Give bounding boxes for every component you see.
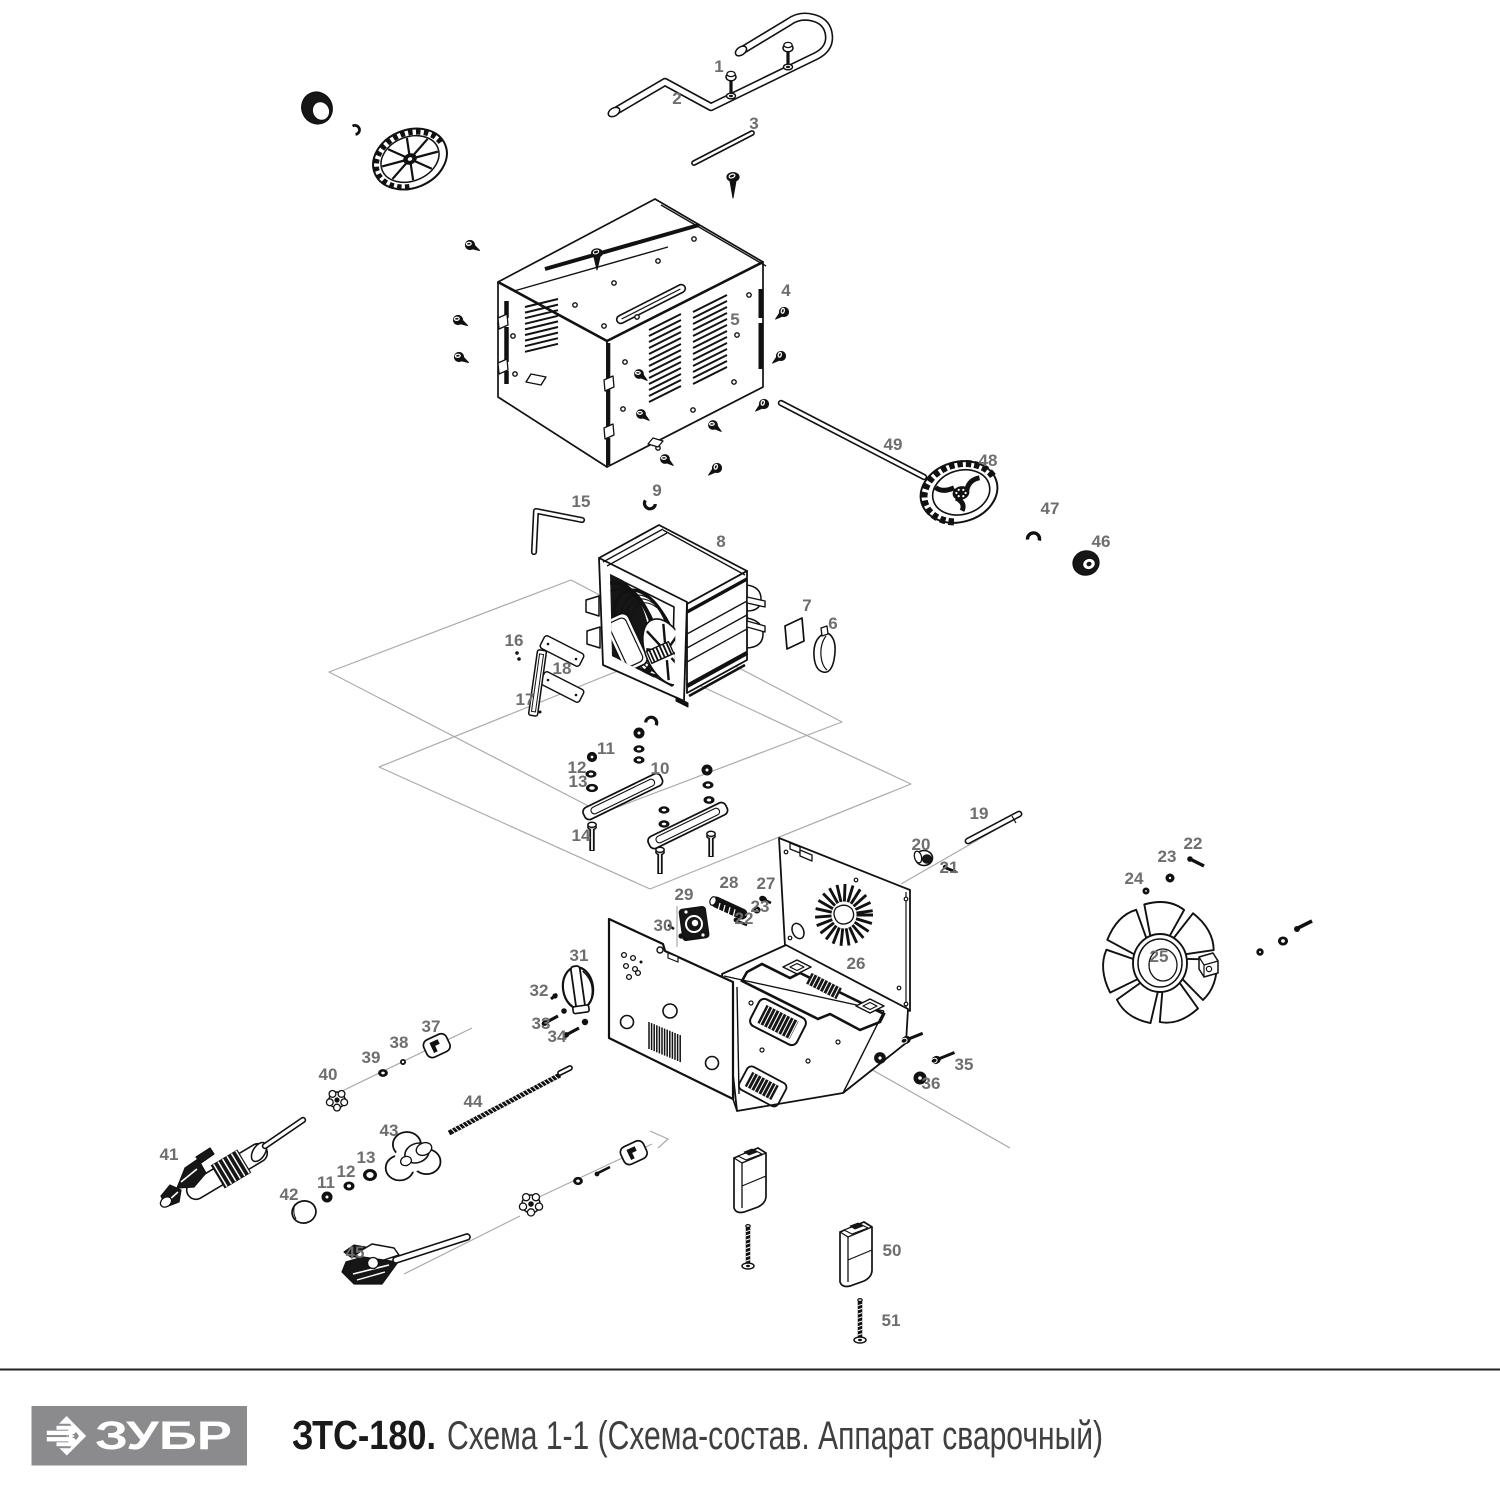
svg-text:47: 47 — [1041, 499, 1060, 518]
svg-text:ЗТС-180.: ЗТС-180. — [292, 1412, 436, 1458]
svg-text:3: 3 — [749, 114, 758, 133]
svg-text:20: 20 — [912, 835, 931, 854]
svg-text:26: 26 — [847, 954, 866, 973]
svg-text:19: 19 — [970, 804, 989, 823]
svg-text:28: 28 — [720, 873, 739, 892]
svg-text:41: 41 — [160, 1145, 179, 1164]
svg-text:21: 21 — [940, 858, 959, 877]
svg-text:25: 25 — [1150, 947, 1169, 966]
svg-text:49: 49 — [884, 435, 903, 454]
svg-text:13: 13 — [357, 1148, 376, 1167]
svg-text:13: 13 — [569, 772, 588, 791]
svg-text:1: 1 — [714, 57, 723, 76]
svg-text:16: 16 — [505, 631, 524, 650]
svg-text:11: 11 — [597, 739, 615, 758]
svg-text:31: 31 — [570, 946, 589, 965]
svg-text:38: 38 — [390, 1033, 409, 1052]
svg-text:29: 29 — [675, 885, 694, 904]
svg-text:4: 4 — [781, 281, 791, 300]
svg-text:30: 30 — [654, 916, 673, 935]
svg-text:48: 48 — [979, 451, 998, 470]
svg-text:5: 5 — [730, 310, 739, 329]
svg-text:18: 18 — [553, 659, 572, 678]
svg-text:42: 42 — [280, 1185, 299, 1204]
svg-text:37: 37 — [422, 1017, 441, 1036]
svg-text:7: 7 — [802, 596, 811, 615]
svg-text:8: 8 — [716, 532, 725, 551]
svg-text:10: 10 — [651, 759, 670, 778]
svg-text:27: 27 — [757, 874, 776, 893]
svg-text:45: 45 — [346, 1243, 365, 1262]
svg-text:9: 9 — [652, 481, 661, 500]
svg-text:51: 51 — [882, 1311, 901, 1330]
svg-text:44: 44 — [464, 1092, 483, 1111]
svg-text:14: 14 — [572, 826, 591, 845]
svg-text:12: 12 — [337, 1162, 356, 1181]
svg-text:32: 32 — [530, 981, 549, 1000]
svg-text:23: 23 — [1158, 847, 1177, 866]
svg-text:40: 40 — [319, 1065, 338, 1084]
svg-text:11: 11 — [317, 1173, 335, 1192]
svg-text:22: 22 — [735, 909, 754, 928]
svg-text:50: 50 — [883, 1241, 902, 1260]
svg-text:6: 6 — [828, 614, 837, 633]
svg-text:22: 22 — [1184, 834, 1203, 853]
svg-text:39: 39 — [362, 1048, 381, 1067]
svg-text:17: 17 — [516, 690, 535, 709]
svg-text:2: 2 — [672, 89, 681, 108]
svg-text:24: 24 — [1125, 869, 1144, 888]
svg-text:36: 36 — [922, 1074, 941, 1093]
svg-text:34: 34 — [548, 1027, 567, 1046]
svg-text:35: 35 — [955, 1055, 974, 1074]
svg-text:15: 15 — [572, 492, 591, 511]
svg-text:43: 43 — [380, 1121, 399, 1140]
svg-text:ЗУБР: ЗУБР — [95, 1414, 232, 1458]
svg-text:46: 46 — [1092, 532, 1111, 551]
svg-text:Схема 1-1 (Схема-состав. Аппар: Схема 1-1 (Схема-состав. Аппарат сварочн… — [447, 1414, 1103, 1458]
